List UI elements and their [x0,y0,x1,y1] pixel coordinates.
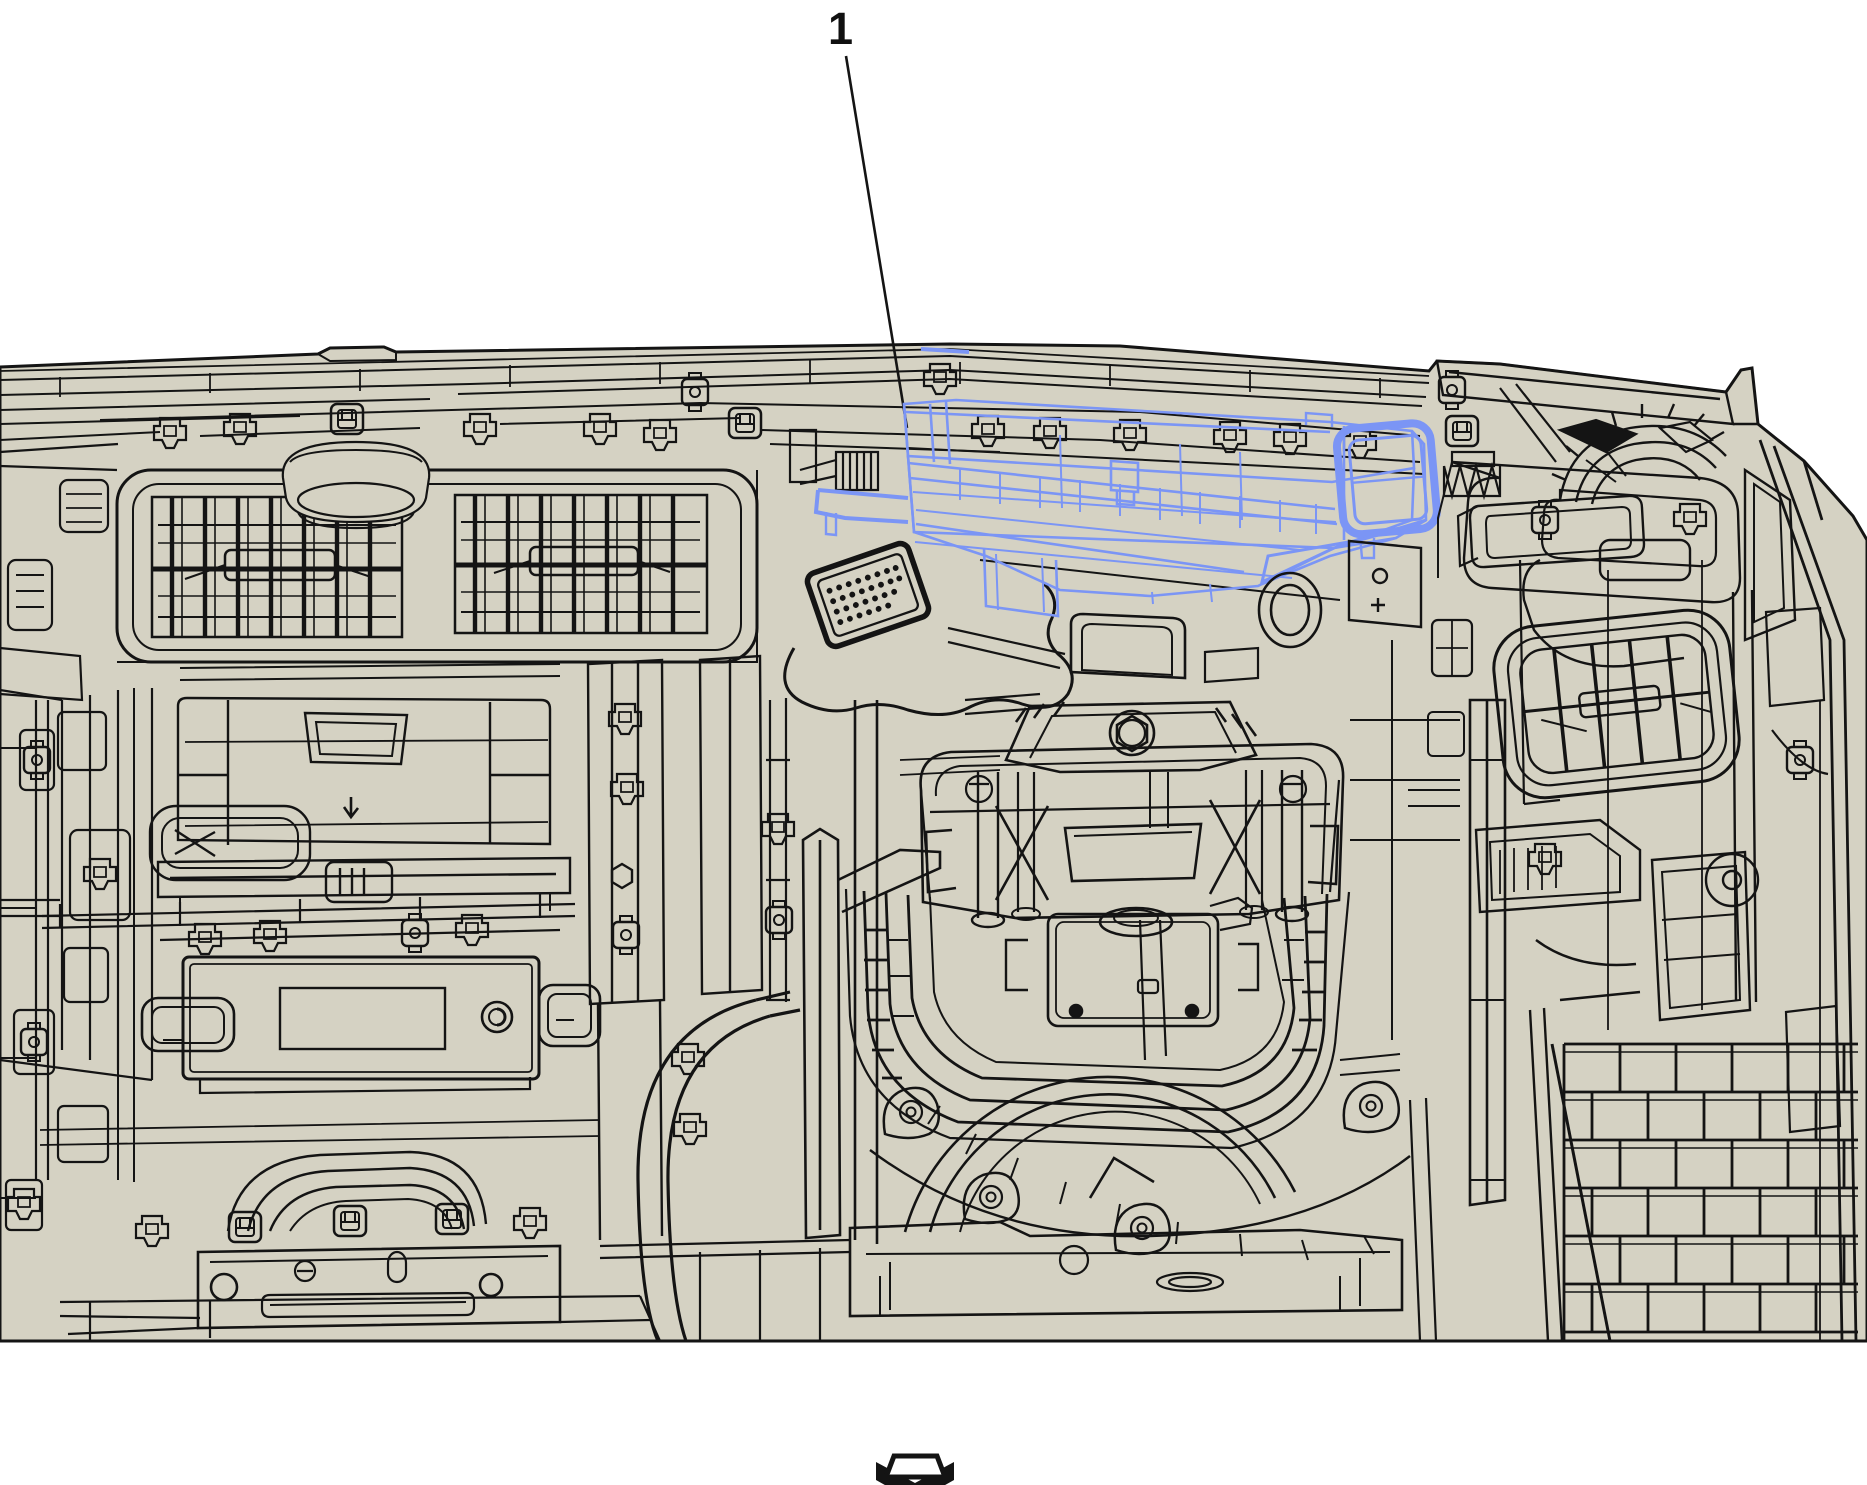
svg-text:1: 1 [828,3,853,54]
